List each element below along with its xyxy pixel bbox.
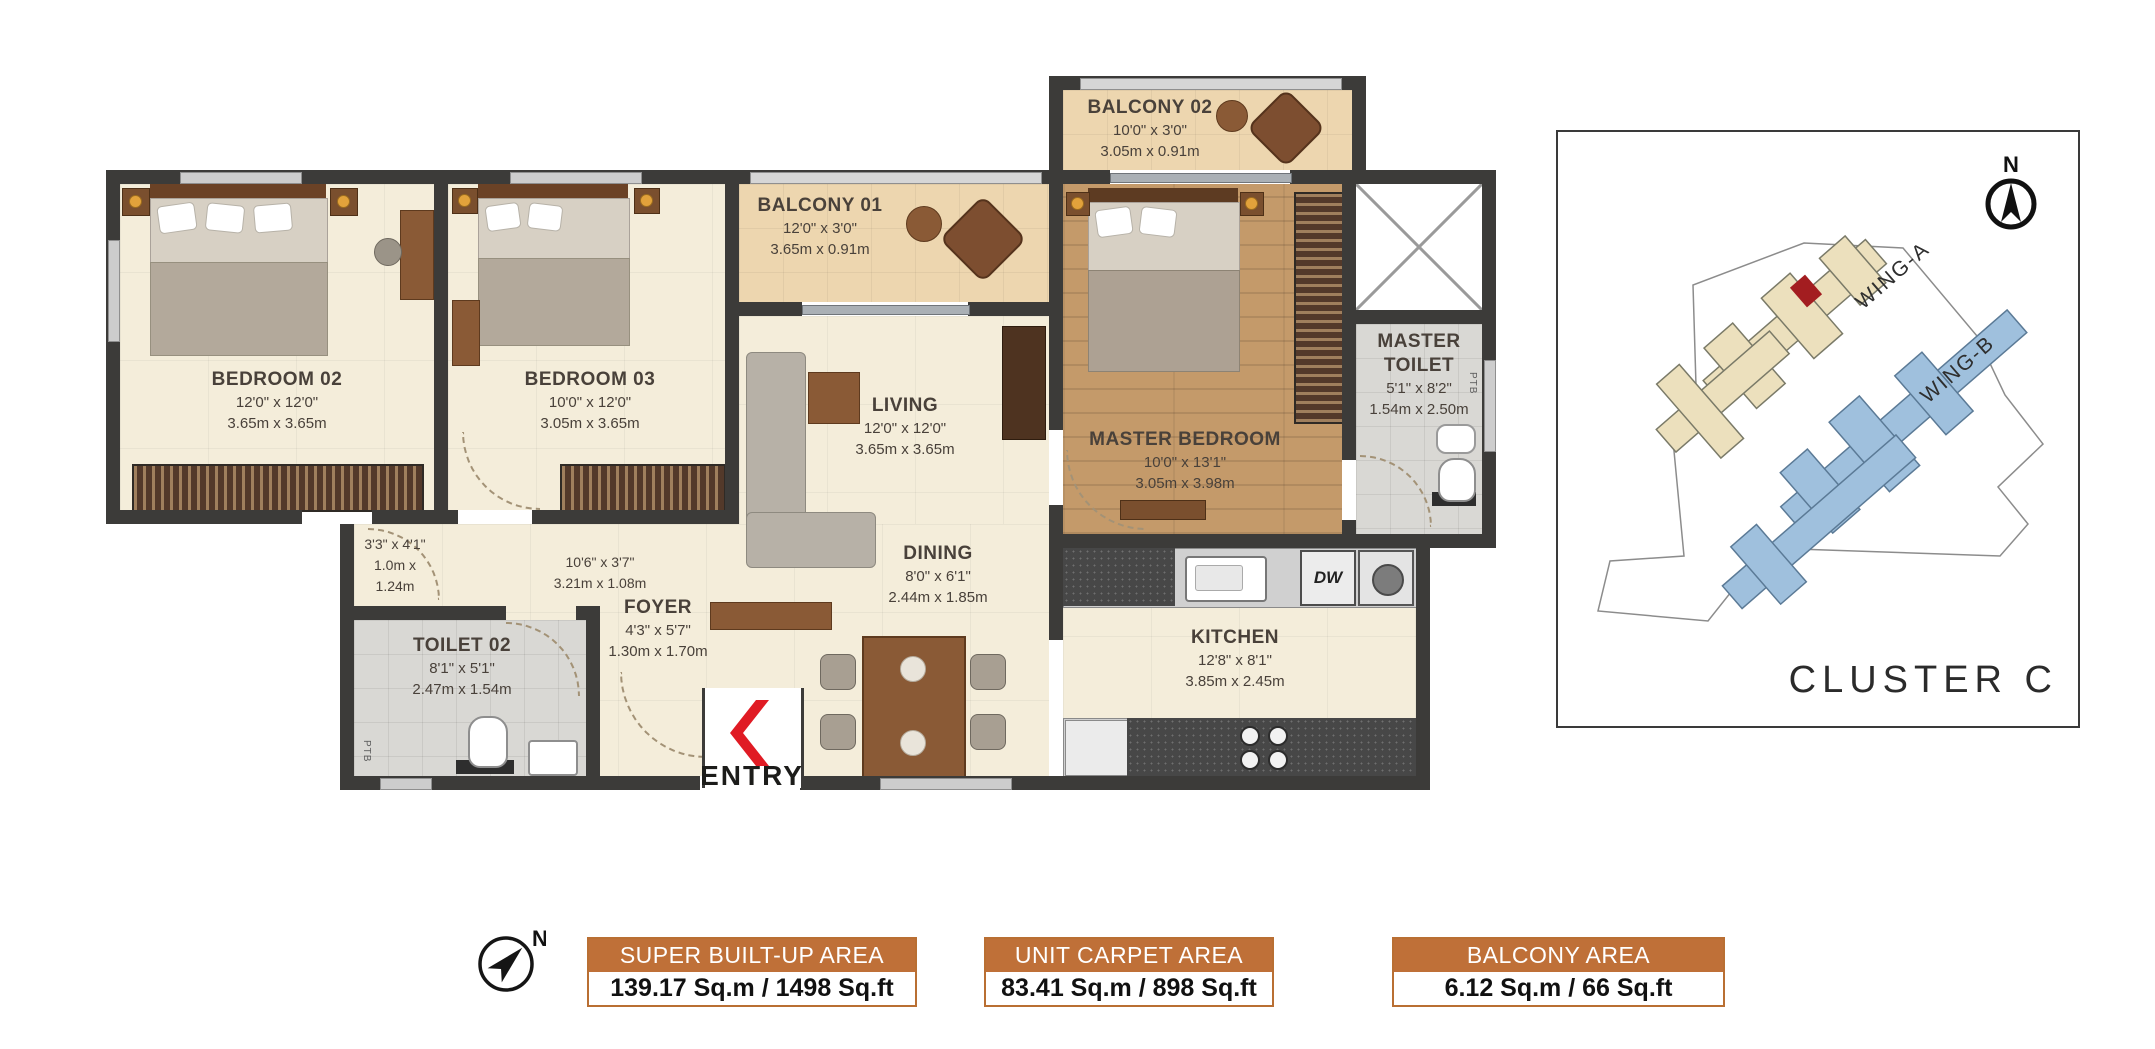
room-name: BALCONY 02	[1050, 96, 1250, 120]
room-dim-m: 3.65m x 3.65m	[177, 413, 377, 434]
room-dim-m: 3.65m x 3.65m	[805, 439, 1005, 460]
plan-north-compass-icon: N	[476, 928, 546, 998]
passage-dim-ft: 3'3" x 4'1"	[345, 534, 445, 555]
lamp-icon	[129, 195, 142, 208]
washing-machine	[1358, 550, 1414, 606]
area-box-balcony: BALCONY AREA 6.12 Sq.m / 66 Sq.ft	[1392, 937, 1725, 1007]
dishwasher: DW	[1300, 550, 1356, 606]
cluster-north-compass-icon: N	[1988, 152, 2034, 227]
bed-blanket	[478, 258, 630, 346]
room-dim-ft: 10'0" x 3'0"	[1050, 120, 1250, 141]
bed-headboard	[478, 184, 628, 198]
chair	[374, 238, 402, 266]
area-box-super-builtup: SUPER BUILT-UP AREA 139.17 Sq.m / 1498 S…	[587, 937, 917, 1007]
window	[880, 778, 1012, 790]
toilet-wc	[468, 716, 508, 768]
room-dim-ft: 4'3" x 5'7"	[588, 620, 728, 641]
room-dim-m: 3.05m x 3.65m	[490, 413, 690, 434]
hob-burner-icon	[1240, 750, 1260, 770]
lamp-icon	[1245, 197, 1258, 210]
duct-label: PTB	[361, 740, 372, 762]
window	[1484, 360, 1496, 452]
lamp-icon	[458, 194, 471, 207]
passage-dim-ft: 10'6" x 3'7"	[510, 552, 690, 573]
room-name: MASTER BEDROOM	[1075, 428, 1295, 452]
room-dim-m: 2.47m x 1.54m	[372, 679, 552, 700]
room-dim-m: 1.54m x 2.50m	[1354, 399, 1484, 420]
dining-table	[862, 636, 966, 782]
room-dim-ft: 12'0" x 12'0"	[177, 392, 377, 413]
balcony01-railing	[750, 172, 1042, 184]
balcony02-railing	[1080, 78, 1342, 90]
room-label-master-bedroom: MASTER BEDROOM 10'0" x 13'1" 3.05m x 3.9…	[1075, 428, 1295, 494]
sliding-door	[1110, 173, 1292, 183]
entry-arrow-icon	[729, 700, 773, 766]
shaft-x-icon	[1356, 184, 1482, 310]
passage-dim-1: 3'3" x 4'1" 1.0m x 1.24m	[345, 534, 445, 597]
refrigerator	[1065, 720, 1129, 776]
washing-machine-drum-icon	[1372, 564, 1404, 596]
chair	[970, 654, 1006, 690]
dresser	[452, 300, 480, 366]
room-name: DINING	[838, 542, 1038, 566]
sink-basin	[1195, 565, 1243, 591]
wall	[1342, 520, 1356, 548]
room-label-bedroom02: BEDROOM 02 12'0" x 12'0" 3.65m x 3.65m	[177, 368, 377, 434]
wall	[340, 606, 506, 620]
kitchen-counter-granite	[1063, 548, 1175, 606]
wall	[1049, 505, 1063, 548]
room-dim-ft: 12'0" x 12'0"	[805, 418, 1005, 439]
room-dim-ft: 12'8" x 8'1"	[1135, 650, 1335, 671]
room-label-master-toilet: MASTER TOILET 5'1" x 8'2" 1.54m x 2.50m	[1354, 330, 1484, 420]
wall	[1049, 534, 1496, 548]
chair	[970, 714, 1006, 750]
hob-burner-icon	[1268, 726, 1288, 746]
area-box-value: 139.17 Sq.m / 1498 Sq.ft	[589, 972, 915, 1005]
bed-headboard	[1088, 188, 1238, 202]
shaft-area	[1356, 184, 1482, 310]
window	[510, 172, 642, 184]
toilet-wc	[1438, 458, 1476, 502]
wardrobe	[132, 464, 424, 512]
pillow	[156, 201, 198, 234]
room-label-balcony02: BALCONY 02 10'0" x 3'0" 3.05m x 0.91m	[1050, 96, 1250, 162]
floor-plan-page: PTB PTB DW ENTRY BALCONY 02 10'0" x 3'0"…	[0, 0, 2155, 1049]
bed-blanket	[150, 262, 328, 356]
room-name: FOYER	[588, 596, 728, 620]
wall	[532, 510, 732, 524]
room-label-dining: DINING 8'0" x 6'1" 2.44m x 1.85m	[838, 542, 1038, 608]
room-label-toilet02: TOILET 02 8'1" x 5'1" 2.47m x 1.54m	[372, 634, 552, 700]
room-dim-m: 3.85m x 2.45m	[1135, 671, 1335, 692]
room-dim-ft: 10'0" x 13'1"	[1075, 452, 1295, 473]
bed-headboard	[150, 184, 326, 198]
wall	[1352, 76, 1366, 170]
room-name: TOILET 02	[372, 634, 552, 658]
wall	[106, 510, 302, 524]
wall	[1049, 170, 1063, 430]
room-dim-m: 3.65m x 0.91m	[720, 239, 920, 260]
room-name: KITCHEN	[1135, 626, 1335, 650]
area-box-title: SUPER BUILT-UP AREA	[589, 939, 915, 972]
foyer-console	[710, 602, 832, 630]
wall	[1482, 170, 1496, 548]
compass-graphic: N	[476, 928, 546, 998]
passage-dim-m1: 1.0m x	[345, 555, 445, 576]
room-dim-ft: 10'0" x 12'0"	[490, 392, 690, 413]
cluster-map-graphic: WING-A WING-B N CLUSTER C	[1558, 132, 2078, 726]
pillow	[1138, 206, 1177, 238]
room-dim-ft: 5'1" x 8'2"	[1354, 378, 1484, 399]
wardrobe	[560, 464, 726, 512]
wall	[106, 170, 120, 524]
room-label-foyer: FOYER 4'3" x 5'7" 1.30m x 1.70m	[588, 596, 728, 662]
wall	[434, 170, 448, 524]
wall	[732, 302, 802, 316]
tv-unit	[1002, 326, 1046, 440]
bed-blanket	[1088, 270, 1240, 372]
room-dim-m: 3.05m x 0.91m	[1050, 141, 1250, 162]
room-dim-ft: 8'1" x 5'1"	[372, 658, 552, 679]
area-box-title: UNIT CARPET AREA	[986, 939, 1272, 972]
washbasin	[528, 740, 578, 776]
area-box-value: 6.12 Sq.m / 66 Sq.ft	[1394, 972, 1723, 1005]
pillow	[205, 202, 246, 234]
wall	[968, 302, 1052, 316]
window	[180, 172, 302, 184]
pillow	[527, 202, 564, 232]
entry-label: ENTRY	[682, 760, 822, 792]
washbasin	[1436, 424, 1476, 454]
passage-dim-m: 3.21m x 1.08m	[510, 573, 690, 594]
room-name: MASTER TOILET	[1354, 330, 1484, 378]
passage-dim-2: 10'6" x 3'7" 3.21m x 1.08m	[510, 552, 690, 594]
room-label-balcony01: BALCONY 01 12'0" x 3'0" 3.65m x 0.91m	[720, 194, 920, 260]
room-dim-m: 2.44m x 1.85m	[838, 587, 1038, 608]
pillow	[484, 202, 521, 232]
plate-icon	[900, 730, 926, 756]
wall	[1049, 548, 1063, 640]
room-name: BALCONY 01	[720, 194, 920, 218]
room-label-living: LIVING 12'0" x 12'0" 3.65m x 3.65m	[805, 394, 1005, 460]
room-label-bedroom03: BEDROOM 03 10'0" x 12'0" 3.05m x 3.65m	[490, 368, 690, 434]
chair	[820, 714, 856, 750]
wing-b-buildings	[1707, 417, 1930, 625]
cluster-map: WING-A WING-B N CLUSTER C	[1556, 130, 2080, 728]
cluster-north-label: N	[2003, 152, 2019, 177]
hob-burner-icon	[1240, 726, 1260, 746]
lamp-icon	[640, 194, 653, 207]
chair	[820, 654, 856, 690]
toilet02-vent-window	[380, 778, 432, 790]
pillow	[1094, 206, 1134, 239]
area-box-value: 83.41 Sq.m / 898 Sq.ft	[986, 972, 1272, 1005]
plate-icon	[900, 656, 926, 682]
wall	[1342, 310, 1496, 324]
lamp-icon	[337, 195, 350, 208]
cluster-title: CLUSTER C	[1789, 659, 2058, 701]
hob-burner-icon	[1268, 750, 1288, 770]
dishwasher-label: DW	[1314, 568, 1342, 587]
area-box-title: BALCONY AREA	[1394, 939, 1723, 972]
pillow	[253, 202, 293, 233]
room-dim-m: 1.30m x 1.70m	[588, 641, 728, 662]
room-dim-m: 3.05m x 3.98m	[1075, 473, 1295, 494]
room-name: LIVING	[805, 394, 1005, 418]
window	[108, 240, 120, 342]
wall	[1416, 548, 1430, 790]
lamp-icon	[1071, 197, 1084, 210]
kitchen-sink	[1185, 556, 1267, 602]
wardrobe	[1294, 192, 1344, 424]
plan-north-label: N	[532, 928, 546, 951]
room-dim-ft: 8'0" x 6'1"	[838, 566, 1038, 587]
wall	[1290, 170, 1496, 184]
room-label-kitchen: KITCHEN 12'8" x 8'1" 3.85m x 2.45m	[1135, 626, 1335, 692]
room-name: BEDROOM 03	[490, 368, 690, 392]
room-name: BEDROOM 02	[177, 368, 377, 392]
sliding-door	[802, 305, 970, 315]
room-dim-ft: 12'0" x 3'0"	[720, 218, 920, 239]
passage-dim-m2: 1.24m	[345, 576, 445, 597]
desk	[400, 210, 434, 300]
area-box-carpet: UNIT CARPET AREA 83.41 Sq.m / 898 Sq.ft	[984, 937, 1274, 1007]
